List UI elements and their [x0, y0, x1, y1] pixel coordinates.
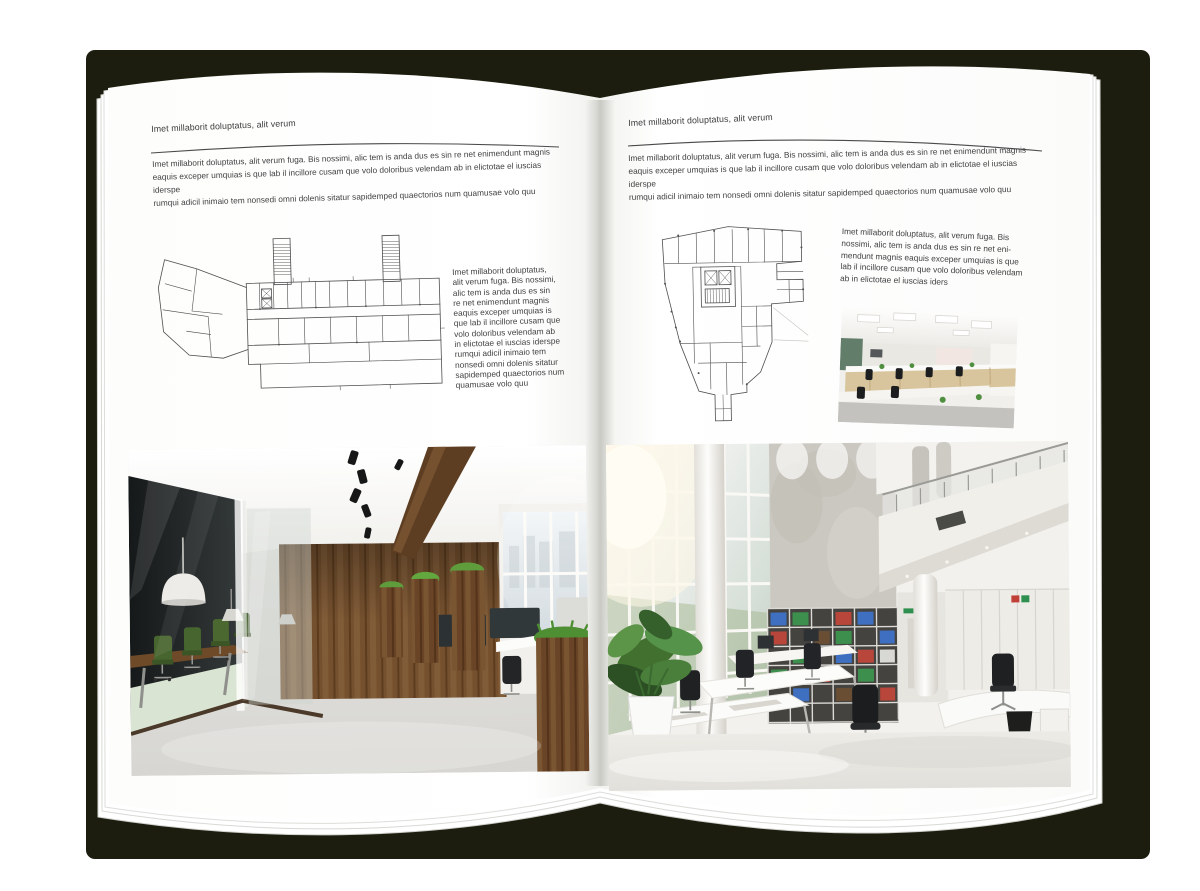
white-column-right: [913, 574, 938, 696]
magazine-spread: Imet millaborit doluptatus, alit verum I…: [0, 0, 1200, 891]
floorplan-right: [648, 221, 813, 424]
right-page-header: Imet millaborit doluptatus, alit verum: [628, 112, 773, 128]
glass-partition: [241, 508, 313, 705]
right-side-caption: Imet millaborit doluptatus, alit verum f…: [840, 226, 1042, 292]
photo-atrium-office: [606, 441, 1071, 791]
plant-wall: [840, 338, 863, 371]
desk-monitor: [758, 636, 774, 649]
photo-cubicle-office: [838, 308, 1018, 428]
left-side-caption: Imet millaborit doluptatus, alit verum f…: [452, 263, 572, 390]
floorplan-left: [156, 232, 449, 406]
white-column-left: [694, 444, 727, 744]
exit-sign: [903, 608, 913, 613]
first-aid-sign: [1011, 595, 1019, 602]
left-page-header: Imet millaborit doluptatus, alit verum: [151, 118, 296, 134]
photo-loft-office: [128, 445, 589, 776]
wall-screen: [870, 349, 882, 357]
corner-planter: [534, 620, 590, 772]
right-intro-paragraph: Imet millaborit doluptatus, alit verum f…: [628, 143, 1043, 204]
